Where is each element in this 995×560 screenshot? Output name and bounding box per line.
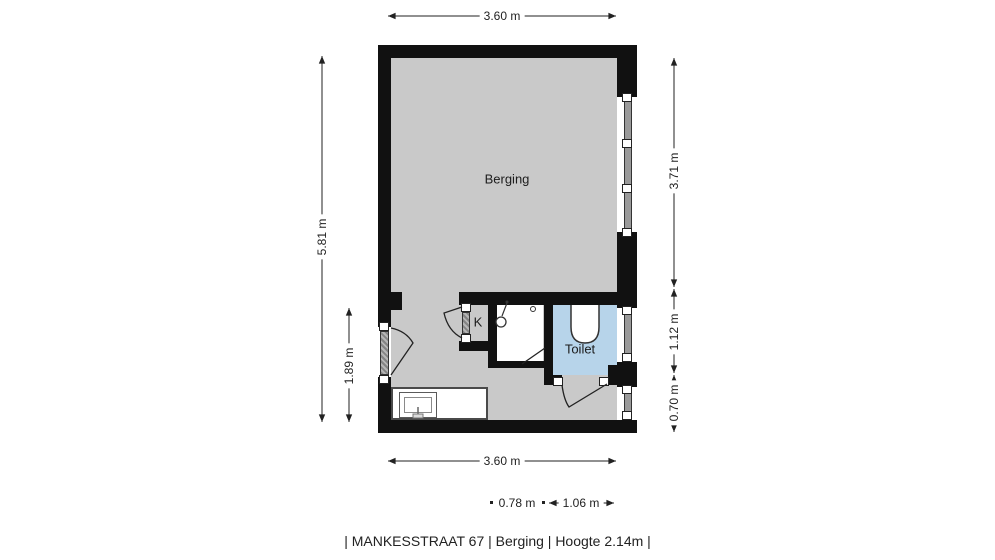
dim-label-bottom-width: 3.60 m	[480, 454, 525, 468]
dim-label-right-middle: 1.12 m	[667, 310, 681, 355]
toilet-door-swing	[562, 384, 607, 407]
dim-tick-shower-left	[490, 501, 493, 504]
shower-valve-icon	[531, 307, 536, 312]
dim-label-bottom-shower: 0.78 m	[495, 496, 540, 510]
closet-door-swing	[444, 307, 462, 338]
dim-label-left-total: 5.81 m	[315, 215, 329, 260]
dim-label-left-lower: 1.89 m	[342, 344, 356, 389]
plan-overlay	[0, 0, 995, 560]
room-label-toilet: Toilet	[565, 342, 595, 357]
shower-door-leaf	[522, 348, 545, 364]
dim-label-right-lower: 0.70 m	[667, 381, 681, 426]
toilet-bowl-icon	[571, 305, 599, 343]
shower-head-dot	[506, 301, 509, 304]
dim-label-top-width: 3.60 m	[480, 9, 525, 23]
sink-faucet-base	[413, 414, 423, 418]
room-label-closet: K	[474, 315, 483, 330]
shower-head-icon	[496, 317, 506, 327]
dim-label-bottom-toilet: 1.06 m	[559, 496, 604, 510]
entry-door-swing	[391, 328, 413, 375]
floorplan-canvas: 3.60 m 5.81 m 1.89 m 3.71 m 1.12 m 0.70 …	[0, 0, 995, 560]
dim-label-right-upper: 3.71 m	[667, 149, 681, 194]
footer-caption: | MANKESSTRAAT 67 | Berging | Hoogte 2.1…	[0, 533, 995, 549]
dim-tick-shower-right	[542, 501, 545, 504]
shower-head-arm	[502, 303, 507, 316]
room-label-berging: Berging	[485, 172, 530, 187]
